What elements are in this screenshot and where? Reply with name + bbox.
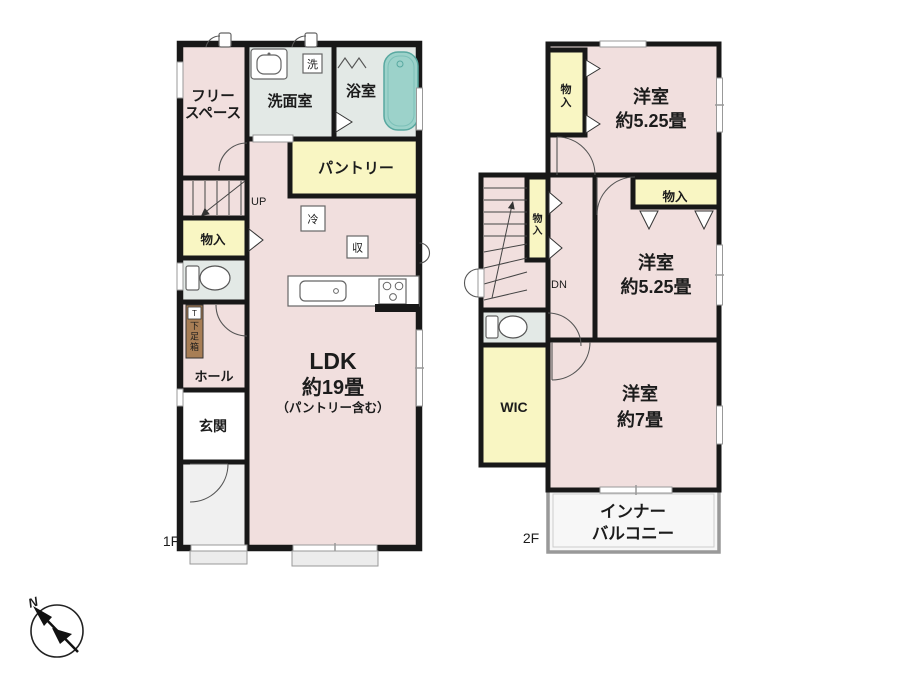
- label-bedroom2-2: 約5.25畳: [620, 276, 691, 297]
- floorplan-page: 冷 収 洗 T 下足箱: [0, 0, 900, 675]
- toilet-icon-1f: [186, 266, 230, 290]
- shoe-cabinet-mark: T: [192, 309, 197, 318]
- label-bedroom2-1: 洋室: [638, 252, 674, 273]
- label-hall: ホール: [194, 369, 233, 384]
- label-washroom: 洗面室: [267, 92, 312, 110]
- window-stairs-west: [478, 269, 484, 297]
- label-balcony-2: バルコニー: [592, 525, 674, 543]
- floor2-label: 2F: [523, 530, 539, 546]
- room-stairs-1f: [180, 178, 247, 218]
- terrace-step: [292, 551, 378, 566]
- label-ldk-1: LDK: [309, 348, 357, 374]
- balcony-sliding-door: [600, 485, 672, 495]
- label-ldk-3: （パントリー含む）: [276, 400, 389, 415]
- label-dn: DN: [551, 279, 567, 291]
- shoe-cabinet-label: 下足箱: [190, 321, 199, 352]
- label-free-space-2: スペース: [185, 106, 241, 122]
- floor2-plan: 物入 洋室 約5.25畳 物入 物入 洋室 約5.25畳 DN WIC 洋室 約…: [465, 41, 724, 552]
- label-ldk-2: 約19畳: [302, 375, 364, 399]
- window-free-space: [177, 62, 183, 98]
- porch-opening: [191, 545, 247, 551]
- label-pantry: パントリー: [318, 160, 394, 177]
- window-bedroom2-east: [715, 245, 724, 305]
- window-toilet-1f: [177, 263, 183, 290]
- label-bedroom1-2: 約5.25畳: [615, 110, 686, 131]
- window-bedroom1-east: [715, 78, 724, 132]
- room-porch: [180, 462, 247, 548]
- floorplan-drawing: 冷 収 洗 T 下足箱: [0, 0, 900, 675]
- label-closet-mid: 物入: [533, 212, 543, 237]
- label-free-space-1: フリー: [191, 89, 235, 105]
- awning-window-stairs: [465, 269, 479, 297]
- window-ldk-east: [415, 330, 424, 406]
- window-bath: [417, 88, 423, 130]
- storage-mark-label: 収: [352, 242, 363, 255]
- label-bedroom1-1: 洋室: [633, 86, 669, 107]
- label-up: UP: [251, 196, 266, 208]
- compass-north-label: N: [26, 593, 40, 610]
- label-bedroom3-2: 約7畳: [617, 409, 663, 430]
- label-balcony-1: インナー: [600, 503, 666, 521]
- compass: N: [26, 593, 83, 657]
- kitchen-sink-icon: [300, 281, 346, 301]
- floor1-label: 1F: [163, 533, 179, 549]
- washroom-opening: [253, 135, 293, 142]
- label-bedroom3-1: 洋室: [622, 383, 658, 404]
- floor1-plan: 冷 収 洗 T 下足箱: [163, 33, 430, 566]
- vanity-icon: [251, 49, 287, 79]
- label-storage-1f: 物入: [200, 232, 226, 247]
- label-wic: WIC: [500, 399, 527, 415]
- label-closet-north: 物入: [561, 82, 572, 109]
- window-entrance: [177, 389, 183, 406]
- window-bedroom1-north: [600, 41, 646, 47]
- laundry-label: 洗: [307, 58, 318, 71]
- fridge-label: 冷: [308, 213, 319, 226]
- label-closet-east: 物入: [662, 189, 688, 204]
- porch-step: [190, 551, 247, 564]
- bathtub-icon: [384, 52, 418, 130]
- toilet-icon-2f: [486, 316, 527, 338]
- shoe-cabinet: T 下足箱: [186, 305, 203, 358]
- label-entrance: 玄関: [199, 418, 227, 434]
- window-bedroom3-east: [717, 406, 723, 444]
- label-bath: 浴室: [346, 82, 376, 100]
- room-ldk: [247, 139, 419, 548]
